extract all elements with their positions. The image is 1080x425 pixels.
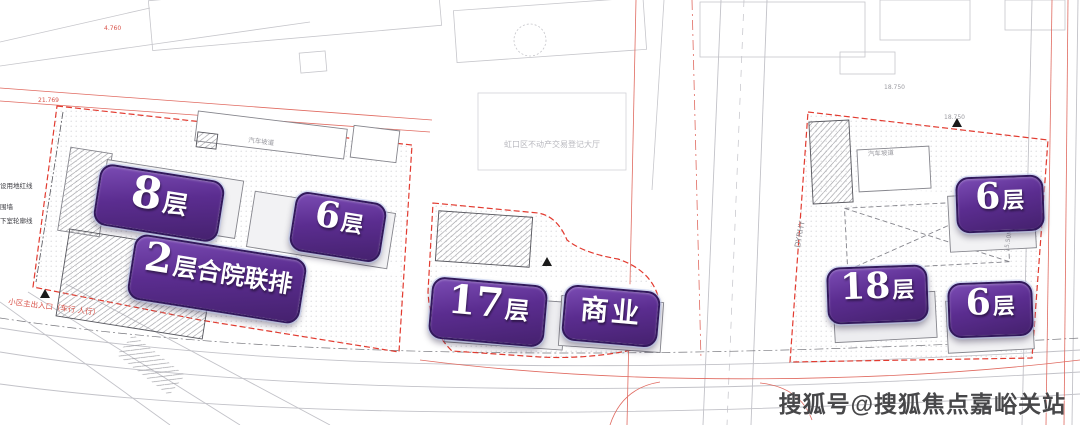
watermark: 搜狐号@搜狐焦点嘉峪关站	[779, 385, 1066, 419]
site-plan-image: 虹口区不动产交易登记大厅 小区主出入口（车行 人行） 汽车坡道 汽车坡道 DYR…	[0, 0, 1080, 425]
label-suffix: 层	[892, 272, 915, 305]
label-suffix: 层	[504, 290, 531, 327]
label-number: 18	[840, 268, 891, 306]
floor-label-6f-east-top: 6层	[955, 174, 1045, 233]
ramp-label-east: 汽车坡道	[868, 148, 895, 158]
elevation-mark-1: 4.760	[104, 25, 121, 32]
label-suffix: 层	[160, 183, 190, 222]
floor-label-6f-east-bottom: 6层	[947, 281, 1034, 339]
label-number: 2	[142, 237, 176, 281]
label-suffix: 层	[1002, 182, 1025, 215]
label-number: 6	[965, 284, 991, 321]
floor-label-17f: 17层	[428, 276, 549, 348]
label-number: 6	[975, 178, 1001, 215]
floor-label-18f: 18层	[826, 264, 929, 324]
elevation-mark-4: 18.750	[944, 114, 965, 121]
legend-wall: 围墙	[0, 202, 14, 211]
label-suffix: 商业	[579, 287, 644, 332]
hall-label: 虹口区不动产交易登记大厅	[504, 139, 600, 149]
crosswalk-hatch	[117, 334, 185, 395]
label-suffix: 层	[992, 288, 1015, 321]
label-number: 6	[313, 196, 343, 235]
label-number: 17	[446, 280, 505, 325]
legend-red-line: 设用地红线	[0, 181, 33, 190]
commercial-label: 商业	[561, 284, 662, 348]
elevation-mark-2: 21.769	[38, 97, 59, 104]
label-suffix: 层合院联排	[171, 246, 295, 299]
elevation-mark-3: 18.750	[884, 84, 905, 91]
label-suffix: 层	[339, 205, 366, 240]
label-number: 8	[128, 170, 165, 218]
legend-basement: 下室轮廓线	[0, 216, 33, 225]
